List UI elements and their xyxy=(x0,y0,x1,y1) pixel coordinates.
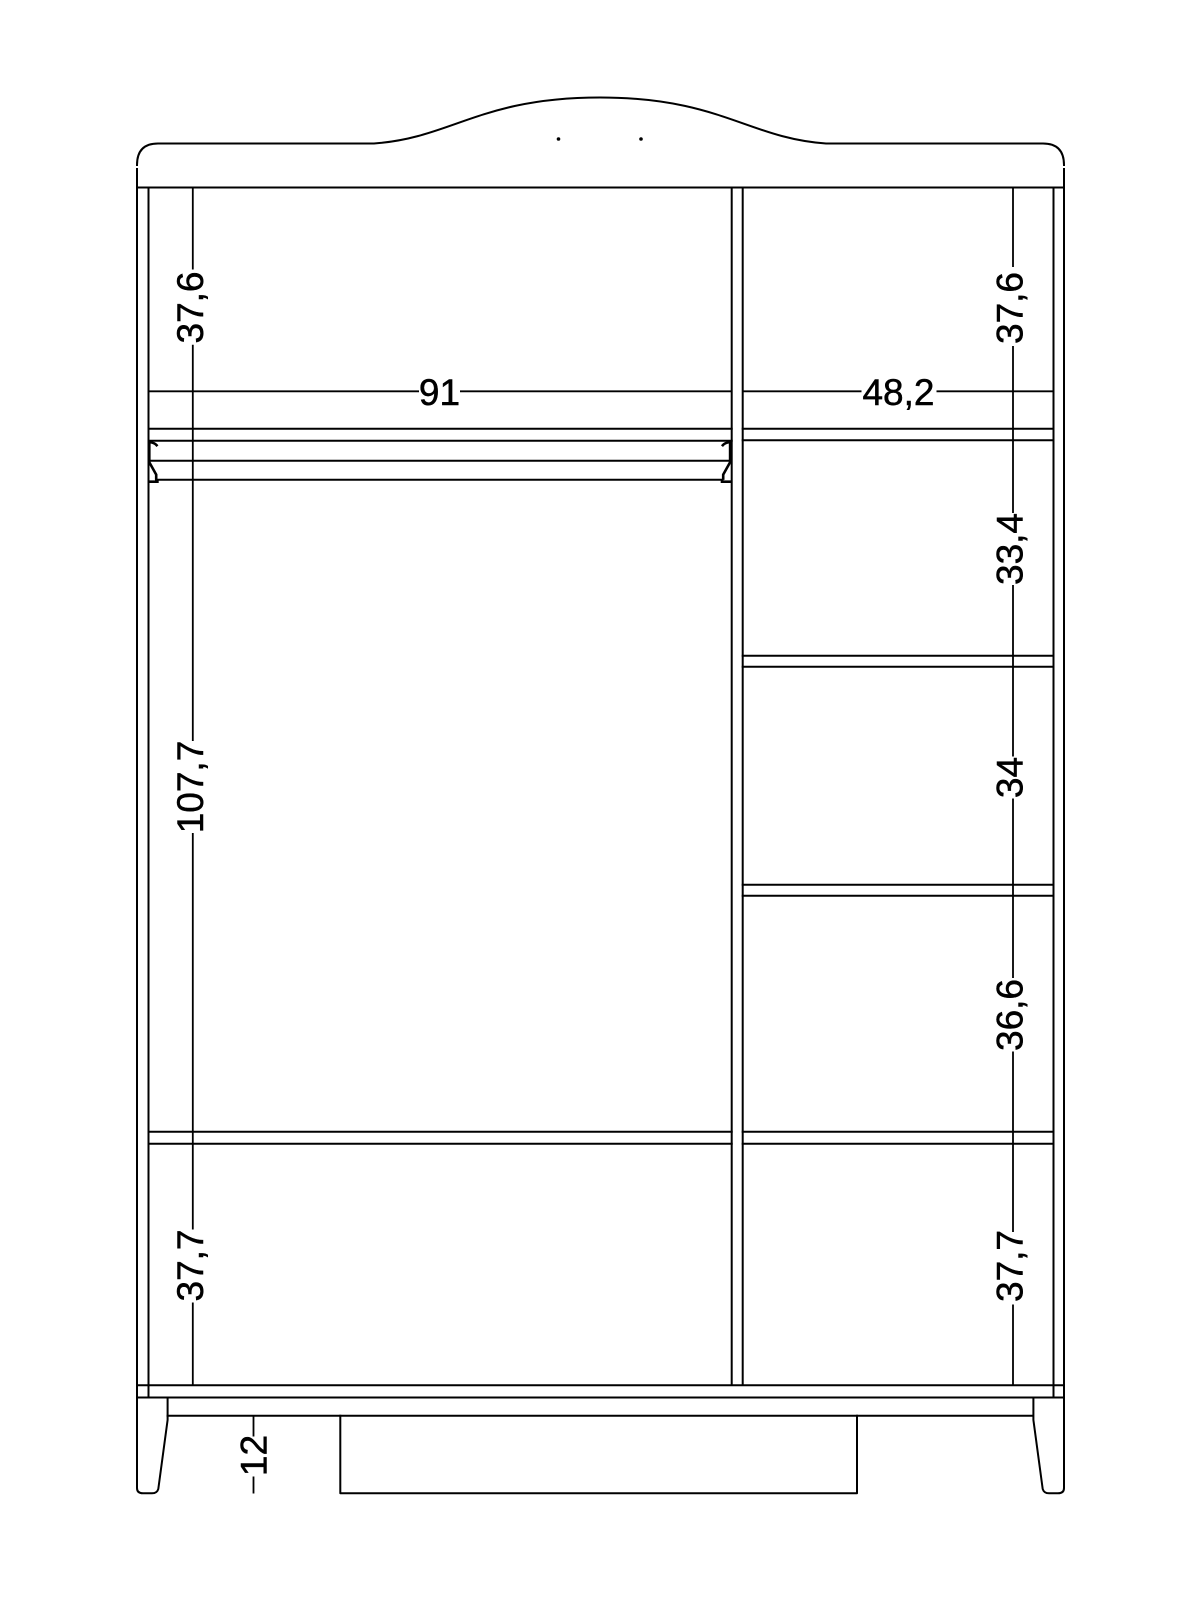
svg-text:37,6: 37,6 xyxy=(990,272,1031,344)
svg-text:12: 12 xyxy=(234,1435,275,1476)
svg-text:34: 34 xyxy=(990,757,1031,798)
svg-text:48,2: 48,2 xyxy=(862,372,934,413)
svg-text:33,4: 33,4 xyxy=(990,513,1031,585)
svg-text:37,7: 37,7 xyxy=(990,1230,1031,1302)
svg-text:107,7: 107,7 xyxy=(170,741,211,834)
svg-text:37,7: 37,7 xyxy=(170,1229,211,1301)
svg-text:91: 91 xyxy=(419,372,460,413)
svg-text:37,6: 37,6 xyxy=(170,271,211,343)
svg-text:36,6: 36,6 xyxy=(990,979,1031,1051)
